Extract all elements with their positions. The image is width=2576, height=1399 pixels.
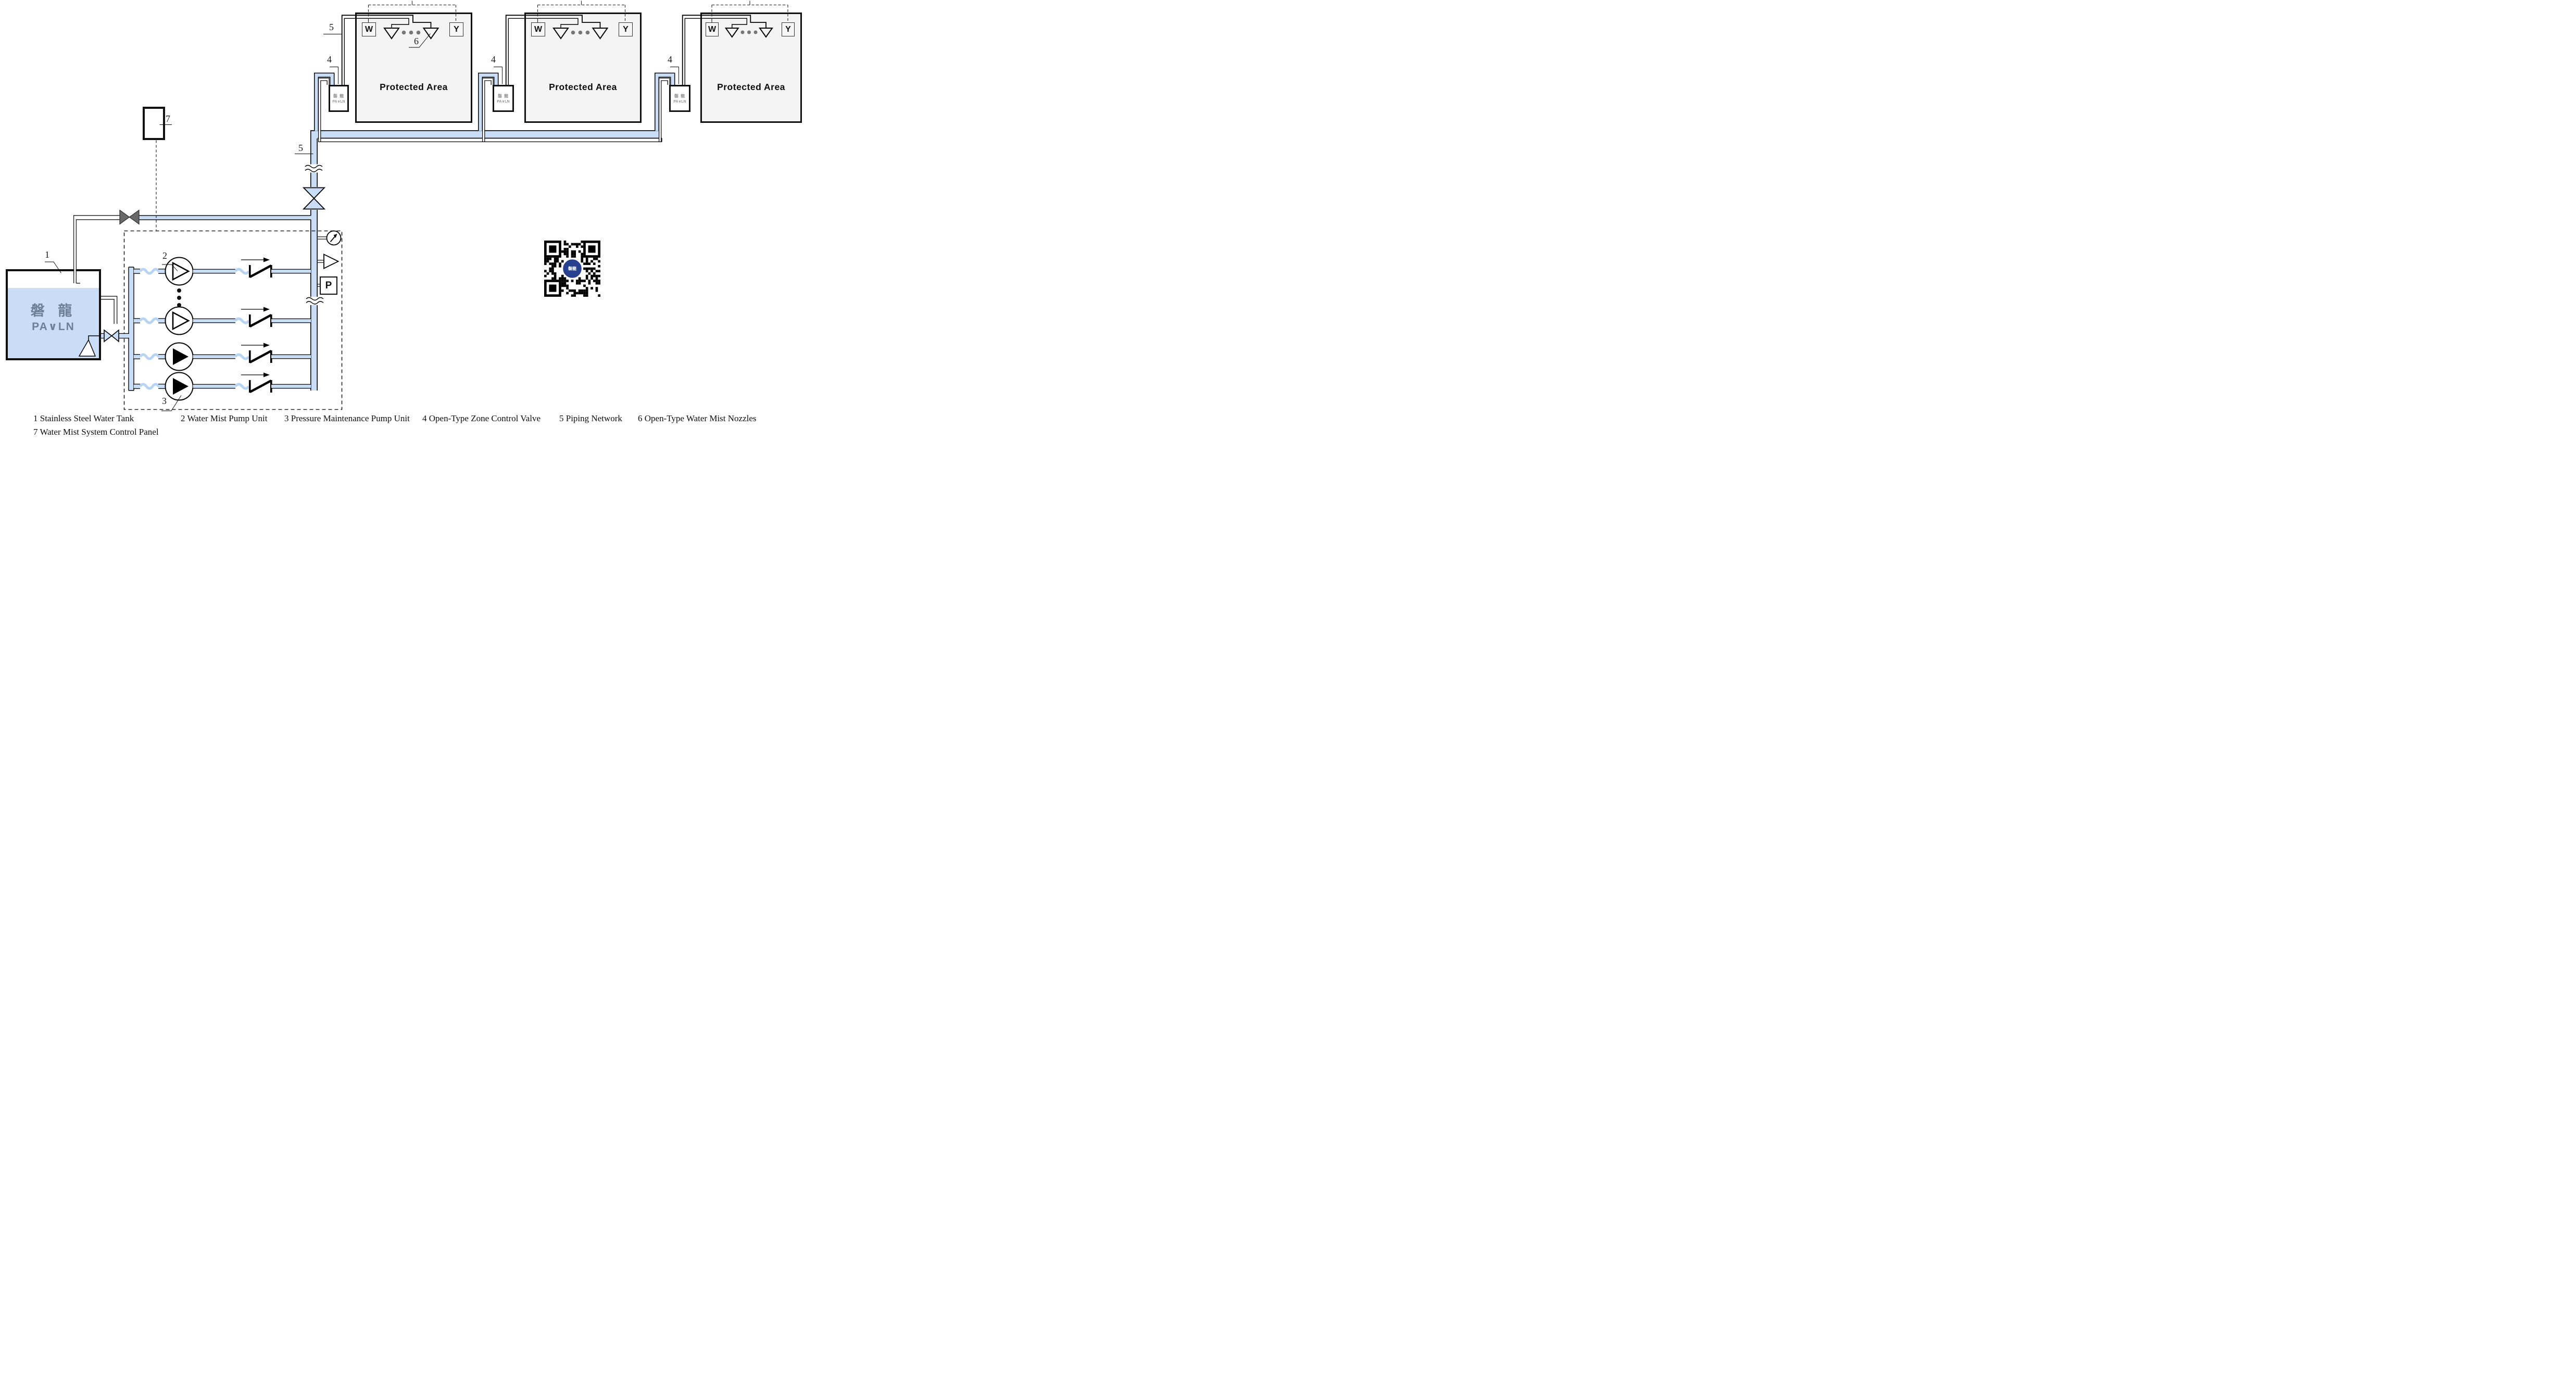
zone-control-valve-3: 磐 龍 PA∨LN [669, 85, 690, 112]
tank-top-line [74, 210, 311, 270]
callout-nozzles: 6 [414, 36, 419, 47]
zone-control-valve-1: 磐 龍 PA∨LN [329, 85, 349, 112]
callout-control-panel: 7 [166, 114, 170, 124]
check-valve-icon [241, 307, 271, 327]
mist-pump-row-1 [133, 258, 311, 285]
control-panel-box [143, 107, 165, 140]
legend-item: 3 Pressure Maintenance Pump Unit [284, 413, 410, 424]
callout-zone-valve-1: 4 [327, 54, 332, 65]
suction-manifold [129, 267, 134, 390]
callout-piping-riser: 5 [298, 143, 303, 154]
riser-details [295, 154, 324, 210]
mist-pump-row-2 [133, 307, 311, 335]
protected-area-3-title: Protected Area [702, 82, 800, 93]
pump-icon [166, 307, 193, 335]
tank-brand-en: PA∨LN [8, 320, 99, 333]
zone-valve-2-brand-en: PA∨LN [497, 99, 509, 104]
pipe-break-icon [306, 298, 323, 305]
smoke-detector-box-1: Y [449, 22, 463, 36]
pump-icon [166, 373, 193, 400]
zone-valve-2-brand-cn: 磐 龍 [498, 93, 509, 99]
pipe-break-icon [305, 166, 322, 172]
qr-code: 磐龍 [544, 241, 600, 297]
pressure-switch-box: P [320, 276, 337, 295]
pressure-gauge-icon [327, 231, 341, 245]
zone-valve-3-brand-en: PA∨LN [673, 99, 686, 104]
water-mist-system-diagram: Protected Area Protected Area Protected … [0, 0, 806, 437]
zone-valve-3-brand-cn: 磐 龍 [674, 93, 685, 99]
flex-hose-icon [235, 269, 249, 273]
water-flow-indicator-box-1: W [362, 22, 376, 36]
smoke-detector-box-2: Y [619, 22, 633, 36]
water-flow-indicator-box-3: W [706, 22, 719, 36]
callout-zone-valve-3: 4 [668, 54, 672, 65]
callout-zone-valve-2: 4 [491, 54, 496, 65]
water-flow-indicator-box-2: W [531, 22, 545, 36]
legend-item: 4 Open-Type Zone Control Valve [422, 413, 541, 424]
tank-outlet-valve-icon [104, 330, 112, 342]
isolation-valve-icon [130, 210, 140, 224]
check-valve-icon [241, 373, 271, 393]
callout-tank: 1 [45, 249, 49, 260]
pump-icon [166, 343, 193, 371]
isolation-valve-icon [120, 210, 130, 224]
callout-piping-upper: 5 [329, 22, 334, 33]
jockey-pump-row-2 [133, 373, 311, 400]
zone-control-valve-2: 磐 龍 PA∨LN [493, 85, 514, 112]
legend-item: 7 Water Mist System Control Panel [33, 427, 159, 437]
main-control-valve-icon [304, 188, 324, 199]
jockey-pump-row-1 [133, 343, 311, 371]
pump-rows [133, 258, 311, 400]
check-valve-icon [241, 258, 271, 278]
zone-valve-1-brand-cn: 磐 龍 [333, 93, 344, 99]
tank-brand-cn: 磐 龍 [8, 299, 99, 320]
legend-item: 6 Open-Type Water Mist Nozzles [638, 413, 757, 424]
callout-jockey-pump: 3 [162, 396, 167, 407]
legend-item: 1 Stainless Steel Water Tank [33, 413, 134, 424]
main-control-valve-icon [304, 198, 324, 209]
water-tank: 磐 龍 PA∨LN [6, 269, 101, 360]
protected-area-2-title: Protected Area [526, 82, 640, 93]
callout-mist-pump: 2 [162, 250, 167, 261]
qr-center-label: 磐龍 [568, 266, 576, 272]
tank-brand: 磐 龍 PA∨LN [8, 299, 99, 333]
relief-valve-icon [324, 255, 338, 269]
flex-hose-icon [140, 269, 165, 273]
overflow-pipe [101, 296, 117, 324]
smoke-detector-box-3: Y [782, 22, 795, 36]
zone-valve-1-brand-en: PA∨LN [332, 99, 345, 104]
piping-network [310, 131, 662, 390]
pump-skid-boundary [124, 231, 342, 410]
check-valve-icon [241, 343, 271, 363]
tank-outlet-valve-icon [112, 330, 119, 342]
pump-icon [166, 258, 193, 285]
protected-area-1-title: Protected Area [357, 82, 471, 93]
legend-item: 5 Piping Network [559, 413, 622, 424]
legend-item: 2 Water Mist Pump Unit [181, 413, 267, 424]
